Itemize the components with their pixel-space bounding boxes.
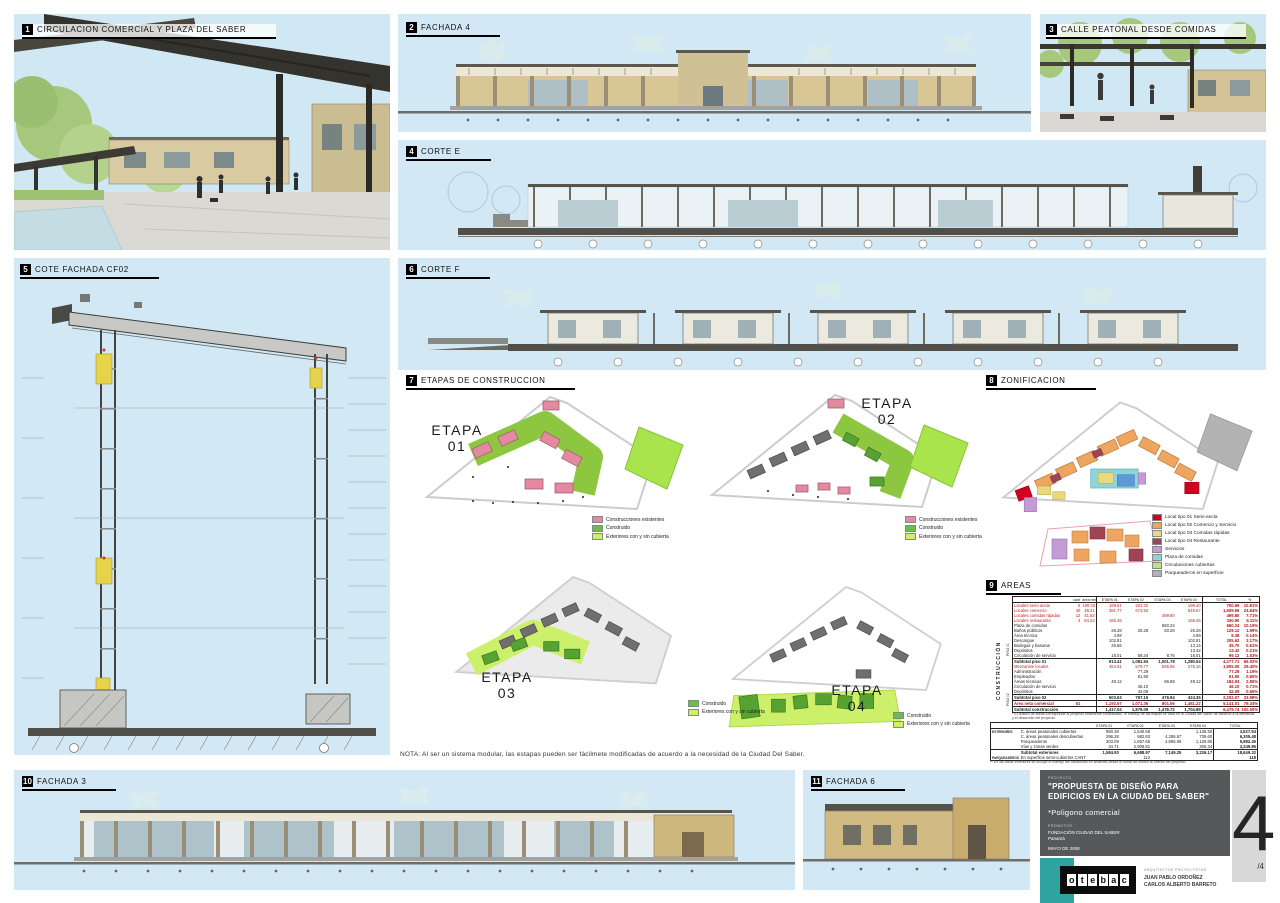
project-title-line2: EDIFICIOS EN LA CIUDAD DEL SABER" (1048, 792, 1222, 802)
panel-9-areas: 9 AREAS CONSTRUCCIÓN PISO 01 PISO 02 can… (978, 578, 1268, 768)
palm-ghosts (501, 278, 1114, 310)
legend-swatch (1152, 554, 1162, 561)
panel-title: FACHADA 6 (826, 777, 875, 786)
panel-10-header: 10 FACHADA 3 (22, 776, 116, 791)
legend-swatch (688, 700, 699, 707)
wall-assemblies (74, 330, 344, 695)
legend-item: Local tipo 03 Comidas rápidas (1152, 530, 1236, 537)
legend-item: Construido (905, 525, 982, 532)
right-structure (1158, 166, 1238, 228)
legend-swatch (893, 712, 904, 719)
panel-8-header: 8 ZONIFICACION (986, 375, 1096, 390)
client-location: Panamá (1048, 836, 1222, 842)
etapa-04-label: ETAPA04 (825, 682, 889, 714)
legend-label: Plaza de comidas (1165, 555, 1203, 560)
legend-item: Local tipo 04 Restaurante (1152, 538, 1236, 545)
areas-exteriores-table: ETAPA 01ETAPA 02ETAPA 03ETAPA 04TOTAL EX… (990, 722, 1258, 761)
etapa-01-legend: Construcciones existentesConstruidoExter… (592, 516, 669, 542)
legend-label: Exteriores con y sin cubierta (907, 721, 970, 727)
panel-number: 3 (1046, 24, 1057, 35)
grid-bubbles (554, 358, 1162, 366)
legend-item: Exteriores con y sin cubierta (893, 721, 970, 728)
panel-6-corte-f: 6 CORTE F (398, 258, 1266, 370)
piso-02-group-label: PISO 02 (1006, 693, 1010, 706)
legend-label: Construido (606, 525, 630, 531)
sheet-number-box: 4 /4 (1232, 770, 1266, 882)
legend-swatch (592, 533, 603, 540)
panel-11-header: 11 FACHADA 6 (811, 776, 905, 791)
project-date: MAYO DE 2008 (1048, 846, 1222, 852)
legend-swatch (688, 709, 699, 716)
logo-letter: t (1078, 874, 1087, 886)
logo-letter: c (1120, 874, 1129, 886)
panel-9-header: 9 AREAS (986, 580, 1061, 595)
legend-swatch (905, 533, 916, 540)
panel-number: 11 (811, 776, 822, 787)
panel-title: FACHADA 3 (37, 777, 86, 786)
project-subtitle: *Poligono comercial (1048, 808, 1222, 817)
panel-4-corte-e: 4 CORTE E (398, 140, 1266, 250)
panel-7-header: 7 ETAPAS DE CONSTRUCCION (406, 375, 575, 390)
legend-label: Exteriores con y sin cubierta (919, 534, 982, 540)
legend-label: Construcciones existentes (919, 517, 977, 523)
legend-item: Local tipo 02 Comercio y Servicio (1152, 522, 1236, 529)
legend-label: Circulaciones cubiertas (1165, 563, 1215, 568)
panel-number: 1 (22, 24, 33, 35)
panel-3-header: 3 CALLE PEATONAL DESDE COMIDAS (1046, 24, 1246, 39)
legend-swatch (905, 516, 916, 523)
etapa-02-diagram (712, 395, 968, 507)
palm-ghosts (127, 784, 650, 812)
panel-1-header: 1 CIRCULACION COMERCIAL Y PLAZA DEL SABE… (22, 24, 276, 39)
panel-title: FACHADA 4 (421, 23, 470, 32)
project-title-line1: "PROPUESTA DE DISEÑO PARA (1048, 782, 1222, 792)
panel-11-fachada-6: 11 FACHADA 6 (803, 770, 1030, 890)
logo-letter: o (1067, 874, 1076, 886)
piso-01-group-label: PISO 01 (1006, 643, 1010, 656)
project-info-box: PROYECTO "PROPUESTA DE DISEÑO PARA EDIFI… (1040, 770, 1230, 856)
legend-item: Construido (688, 700, 765, 707)
legend-swatch (1152, 522, 1162, 529)
etapa-03-label: ETAPA03 (475, 669, 539, 701)
elevation-building (14, 810, 795, 865)
architect-2: CARLOS ALBERTO BARRETO (1144, 882, 1244, 889)
panel-title: CALLE PEATONAL DESDE COMIDAS (1061, 25, 1216, 34)
etapa-04-legend: ConstruidoExteriores con y sin cubierta (893, 712, 970, 729)
legend-label: Exteriores con y sin cubierta (702, 709, 765, 715)
legend-item: Construido (893, 712, 970, 719)
legend-swatch (1152, 530, 1162, 537)
servicios-block (1024, 498, 1036, 512)
logo-letter: b (1099, 874, 1108, 886)
legend-label: Local tipo 02 Comercio y Servicio (1165, 523, 1236, 528)
bollards (83, 870, 694, 873)
etapa-02-legend: Construcciones existentesConstruidoExter… (905, 516, 982, 542)
panel-4-header: 4 CORTE E (406, 146, 491, 161)
zoning-site (1003, 403, 1252, 512)
legend-swatch (905, 525, 916, 532)
section-modules (540, 310, 1186, 344)
legend-swatch (1152, 570, 1162, 577)
cf02-detail-drawing (14, 258, 390, 755)
legend-item: Servicios (1152, 546, 1236, 553)
panel-number: 10 (22, 776, 33, 787)
panel-number: 6 (406, 264, 417, 275)
sheet-number: 4 (1232, 778, 1266, 868)
legend-item: Construcciones existentes (592, 516, 669, 523)
areas-construccion-table: cantárea mediaETAPA 01ETAPA 02ETAPA 03ET… (1012, 596, 1260, 713)
legend-item: Plaza de comidas (1152, 554, 1236, 561)
legend-swatch (1152, 538, 1162, 545)
legend-swatch (1152, 514, 1162, 521)
legend-label: Construido (919, 525, 943, 531)
panel-title: AREAS (1001, 581, 1031, 590)
otebac-logo: otebac (1060, 866, 1136, 894)
presentation-board: 1 CIRCULACION COMERCIAL Y PLAZA DEL SABE… (0, 0, 1280, 903)
sheet-total: /4 (1257, 862, 1264, 871)
section-building (493, 184, 1128, 227)
panel-title: ZONIFICACION (1001, 376, 1066, 385)
legend-label: Local tipo 04 Restaurante (1165, 539, 1220, 544)
roof-slab (52, 294, 346, 364)
title-block: 4 /4 PROYECTO "PROPUESTA DE DISEÑO PARA … (1040, 770, 1266, 903)
elevation-building (803, 798, 1030, 862)
panel-number: 7 (406, 375, 417, 386)
yellow-highlights (96, 354, 322, 702)
panel-number: 4 (406, 146, 417, 157)
logo-letter: e (1088, 874, 1097, 886)
legend-item: Construcciones existentes (905, 516, 982, 523)
panel-title: CIRCULACION COMERCIAL Y PLAZA DEL SABER (37, 25, 246, 34)
legend-swatch (1152, 562, 1162, 569)
grid-bubbles (70, 744, 329, 753)
legend-item: Circulaciones cubiertas (1152, 562, 1236, 569)
corte-e-drawing (398, 140, 1266, 250)
etapa-03-diagram (456, 577, 671, 683)
panel-1-render-plaza: 1 CIRCULACION COMERCIAL Y PLAZA DEL SABE… (14, 14, 390, 250)
areas-footnote-2: ** En las áreas exteriores se incluye el… (990, 760, 1250, 764)
legend-item: Parqueaderos en superficie (1152, 570, 1236, 577)
panel-10-fachada-3: 10 FACHADA 3 (14, 770, 795, 890)
legend-label: Construido (907, 713, 931, 719)
legend-swatch (893, 721, 904, 728)
areas-footnote-1: * El cuadro de áreas corresponde al proy… (1012, 712, 1256, 720)
plaza-comidas-cluster (1091, 469, 1146, 488)
etapa-02-label: ETAPA02 (855, 395, 919, 427)
legend-label: Local tipo 01 Semi-ancla (1165, 515, 1218, 520)
legend-label: Local tipo 03 Comidas rápidas (1165, 531, 1230, 536)
panel-2-header: 2 FACHADA 4 (406, 22, 500, 37)
panel-2-fachada-4: 2 FACHADA 4 (398, 14, 1031, 132)
legend-item: Construido (592, 525, 669, 532)
plaza-render-drawing (14, 14, 390, 250)
legend-label: Construido (702, 701, 726, 707)
legend-label: Construcciones existentes (606, 517, 664, 523)
red-markers (103, 349, 318, 560)
panel-title: ETAPAS DE CONSTRUCCION (421, 376, 545, 385)
architects-label: ARQUITECTOS PROYECTISTAS (1144, 868, 1244, 872)
logo-letter: a (1109, 874, 1118, 886)
fachada-3-drawing (14, 770, 795, 890)
ground-band (458, 228, 1238, 235)
construccion-side-label: CONSTRUCCIÓN (996, 641, 1002, 700)
zonificacion-legend: Local tipo 01 Semi-anclaLocal tipo 02 Co… (1152, 514, 1236, 578)
etapa-03-legend: ConstruidoExteriores con y sin cubierta (688, 700, 765, 717)
corte-f-drawing (398, 258, 1266, 370)
panel-number: 2 (406, 22, 417, 33)
legend-swatch (592, 516, 603, 523)
legend-item: Exteriores con y sin cubierta (905, 533, 982, 540)
etapas-nota: NOTA: Al ser un sistema modular, las est… (400, 751, 970, 758)
legend-item: Local tipo 01 Semi-ancla (1152, 514, 1236, 521)
panel-number: 8 (986, 375, 997, 386)
client-label: PROMOTOR (1048, 824, 1222, 828)
legend-label: Exteriores con y sin cubierta (606, 534, 669, 540)
footings (60, 690, 350, 728)
panel-title: CORTE F (421, 265, 460, 274)
panel-3-render-comidas: 3 CALLE PEATONAL DESDE COMIDAS (1040, 14, 1266, 132)
panel-5-corte-fachada-cf02: 5 COTE FACHADA CF02 (14, 258, 390, 755)
panel-number: 9 (986, 580, 997, 591)
areas-table-row: Área neta comercial611,193.571,071.36801… (1013, 701, 1260, 707)
legend-item: Exteriores con y sin cubierta (592, 533, 669, 540)
ground-band (28, 728, 376, 736)
bollards (832, 868, 1003, 871)
ground-band (508, 344, 1238, 351)
lower-building-cluster (1040, 521, 1160, 566)
ground-hatch (32, 736, 352, 750)
panel-5-header: 5 COTE FACHADA CF02 (20, 264, 159, 279)
panel-number: 5 (20, 264, 31, 275)
panel-title: CORTE E (421, 147, 461, 156)
panel-6-header: 6 CORTE F (406, 264, 490, 279)
dimension-lines (22, 378, 386, 678)
grid-bubbles (534, 240, 1202, 248)
etapa-01-label: ETAPA01 (425, 422, 489, 454)
project-label: PROYECTO (1048, 776, 1222, 780)
legend-label: Parqueaderos en superficie (1165, 571, 1224, 576)
legend-swatch (592, 525, 603, 532)
bollards (467, 119, 950, 122)
panel-title: COTE FACHADA CF02 (35, 265, 129, 274)
legend-label: Servicios (1165, 547, 1184, 552)
legend-item: Exteriores con y sin cubierta (688, 709, 765, 716)
legend-swatch (1152, 546, 1162, 553)
architects-block: ARQUITECTOS PROYECTISTAS JUAN PABLO ORDO… (1144, 868, 1244, 888)
